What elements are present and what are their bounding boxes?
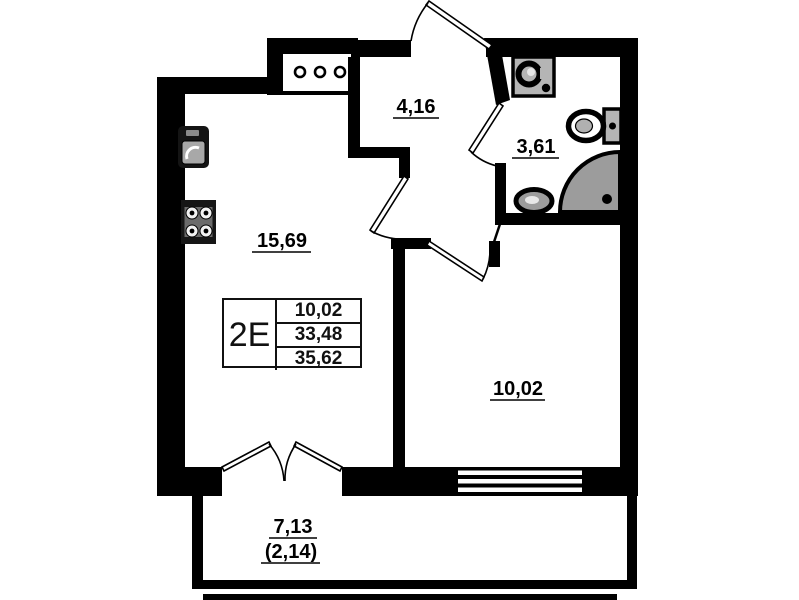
burner-center (190, 211, 195, 216)
bedroom-area-label: 10,02 (493, 378, 543, 400)
burner-center (204, 229, 209, 234)
vent-hole-icon (335, 67, 345, 77)
wall-jamb-connector (494, 224, 500, 242)
washer-drum-inner (527, 68, 535, 76)
wall-top-left (157, 77, 269, 94)
wall-hall-living (356, 147, 405, 158)
shower-drain (602, 194, 612, 204)
wall-living-bedroom (393, 238, 405, 470)
balcony-area-label: 7,13 (274, 516, 313, 538)
window-stripe (458, 488, 582, 493)
entrance-door (411, 1, 492, 49)
door-swing-arc (269, 444, 284, 481)
window-stripe (458, 471, 582, 476)
washer-knob (542, 84, 550, 92)
door-leaf (370, 176, 408, 233)
balcony-railing (192, 495, 637, 600)
door-swing-arc (285, 444, 296, 481)
burner-center (204, 211, 209, 216)
wall-hallway-left (348, 57, 360, 158)
door-leaf (294, 442, 342, 471)
balcony-rail-right (627, 495, 637, 589)
window-stripe (458, 479, 582, 484)
door-leaf (222, 442, 271, 471)
balcony-rail-left (192, 496, 203, 588)
balcony-rail-bottom (192, 580, 637, 589)
bathroom-sink (516, 190, 552, 213)
floor-plan-drawing: 15,69 4,16 3,61 10,02 7,13 (2,14) (0, 0, 799, 600)
door-leaf (426, 1, 492, 49)
door-leaf (427, 241, 484, 281)
balcony-reduced-area-label: (2,14) (265, 541, 317, 563)
door-swing-arc (471, 152, 497, 166)
balcony-french-doors (222, 442, 342, 481)
stove (181, 200, 216, 244)
corner-shower (560, 152, 620, 212)
washing-machine (513, 57, 554, 96)
door-swing-arc (483, 252, 490, 279)
living-hall-door (370, 176, 408, 239)
bedroom-door (427, 241, 490, 281)
bathroom-area-label: 3,61 (517, 136, 556, 158)
ventilation-shaft (267, 38, 358, 95)
door-leaf (469, 103, 503, 153)
unit-area-living-total: 33,48 (277, 324, 360, 348)
door-swing-arc (411, 3, 428, 41)
shower-tray (560, 152, 620, 212)
kitchen-sink (178, 126, 209, 168)
wall-bathroom-bottom (495, 213, 638, 225)
burner-center (190, 229, 195, 234)
wall-right (620, 38, 638, 495)
toilet-tank-button (609, 123, 616, 130)
living-kitchen-area-label: 15,69 (257, 230, 307, 252)
wall-hall-living-jamb (399, 147, 410, 178)
toilet (569, 109, 622, 143)
unit-type-label: 2E (224, 300, 277, 370)
sink-faucet (186, 130, 199, 136)
bedroom-window (458, 471, 582, 493)
wall-bathroom-top (486, 38, 638, 57)
wall-hallway-top (356, 40, 411, 57)
toilet-bowl-inner (576, 119, 593, 133)
door-swing-arc (371, 231, 398, 239)
basin-inner (525, 196, 539, 204)
hallway-area-label: 4,16 (397, 96, 436, 118)
floor-plan: 15,69 4,16 3,61 10,02 7,13 (2,14) 2E 10,… (0, 0, 799, 600)
unit-area-living: 10,02 (277, 300, 360, 324)
unit-area-total: 35,62 (277, 348, 360, 370)
washer-detail (540, 68, 549, 79)
unit-info-table: 2E 10,02 33,48 35,62 (222, 298, 362, 368)
vent-hole-icon (295, 67, 305, 77)
bathroom-door (469, 103, 503, 166)
balcony-slab-edge (203, 594, 617, 600)
sink-bowl (182, 141, 205, 164)
wall-bottom-left (157, 467, 222, 496)
vent-hole-icon (315, 67, 325, 77)
